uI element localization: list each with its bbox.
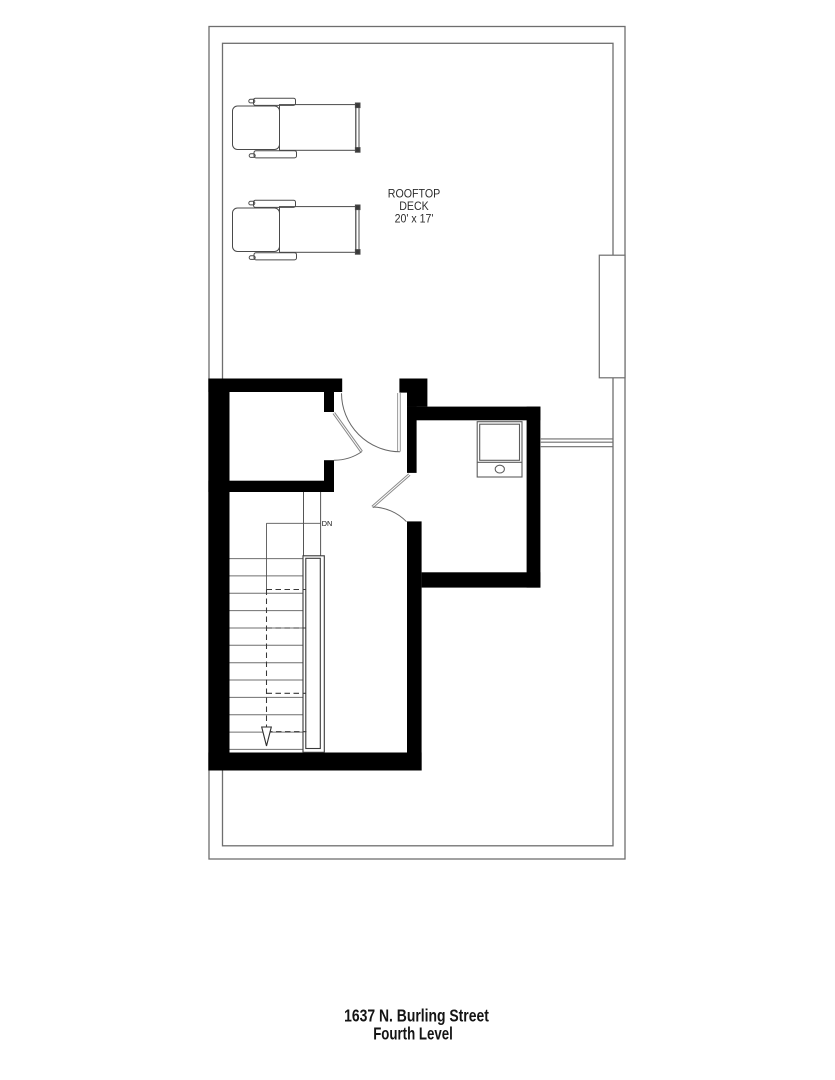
svg-text:Fourth Level: Fourth Level (373, 1024, 453, 1044)
svg-text:DN: DN (322, 521, 333, 528)
svg-text:20' x 17': 20' x 17' (395, 212, 434, 226)
